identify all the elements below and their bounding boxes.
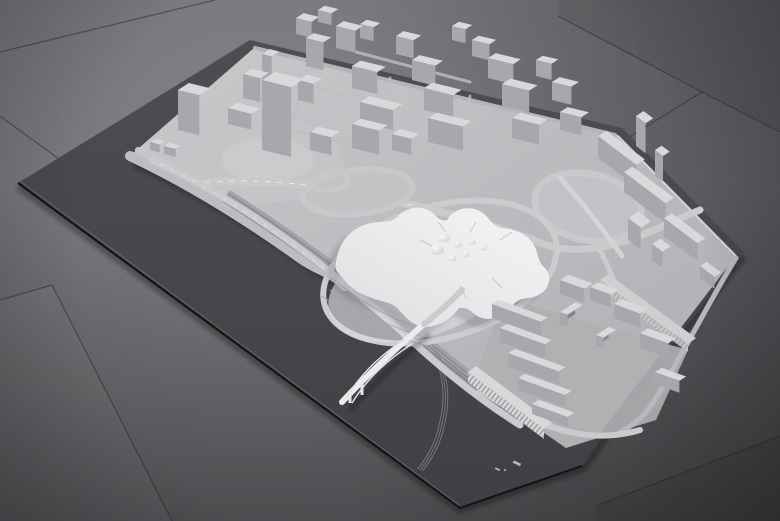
model-photograph: [0, 0, 780, 521]
vignette: [0, 0, 780, 521]
photo-canvas: [0, 0, 780, 521]
